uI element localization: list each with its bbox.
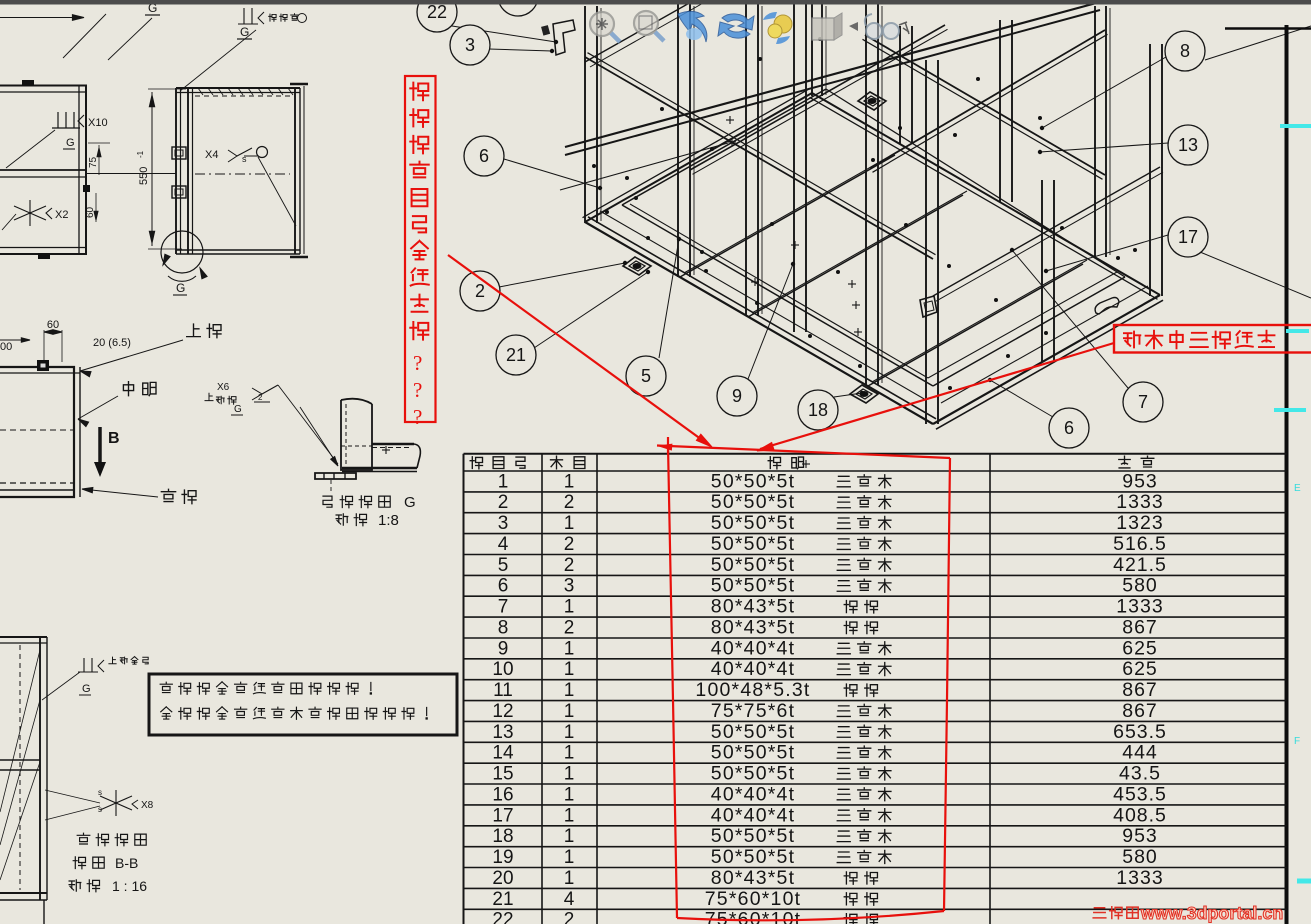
svg-text:7: 7 [1138, 392, 1148, 412]
svg-text:B-B: B-B [115, 855, 138, 871]
svg-text:80*43*5t: 80*43*5t [711, 617, 795, 639]
svg-text:1: 1 [564, 638, 575, 659]
svg-text:3: 3 [564, 576, 575, 597]
svg-text:50*50*5t: 50*50*5t [711, 533, 795, 555]
svg-text:G: G [82, 683, 91, 695]
svg-text:50*50*5t: 50*50*5t [711, 491, 795, 513]
svg-text:2: 2 [564, 492, 575, 513]
svg-text:11: 11 [493, 680, 513, 701]
svg-text:14: 14 [492, 743, 514, 764]
svg-text:625: 625 [1122, 637, 1158, 659]
svg-text:15: 15 [492, 764, 513, 785]
svg-text:s: s [98, 788, 102, 797]
svg-text:www.3dportal.cn: www.3dportal.cn [1140, 903, 1283, 923]
svg-text:?: ? [413, 378, 422, 402]
svg-text:X4: X4 [205, 149, 218, 161]
svg-text:1: 1 [564, 597, 575, 618]
svg-text:1: 1 [564, 868, 575, 889]
svg-text:953: 953 [1122, 470, 1158, 492]
svg-text:B: B [108, 430, 120, 447]
svg-text:9: 9 [498, 638, 509, 659]
svg-text:1323: 1323 [1116, 512, 1163, 534]
svg-text:6: 6 [479, 146, 489, 166]
svg-text:X2: X2 [55, 209, 68, 221]
svg-text:G: G [66, 137, 75, 149]
svg-text:80*43*5t: 80*43*5t [711, 867, 795, 889]
svg-text:408.5: 408.5 [1113, 804, 1167, 826]
svg-text:5: 5 [498, 555, 509, 576]
svg-text:22: 22 [492, 910, 513, 924]
svg-text:18: 18 [808, 400, 828, 420]
svg-text:1: 1 [564, 680, 575, 701]
svg-text:16: 16 [492, 784, 513, 805]
svg-text:X10: X10 [88, 117, 108, 129]
svg-text:F: F [1294, 736, 1300, 747]
svg-text:21: 21 [492, 889, 513, 910]
svg-text:75*60*10t: 75*60*10t [705, 909, 801, 924]
svg-text:10: 10 [492, 659, 513, 680]
svg-text:1: 1 [564, 471, 575, 492]
svg-text:7: 7 [498, 597, 509, 618]
svg-text:625: 625 [1122, 658, 1158, 680]
svg-text:1: 1 [564, 513, 575, 534]
svg-text:1: 1 [564, 722, 575, 743]
svg-text:1: 1 [564, 764, 575, 785]
svg-text:1333: 1333 [1116, 491, 1163, 513]
svg-text:G: G [176, 281, 185, 295]
svg-text:75*75*6t: 75*75*6t [711, 700, 795, 722]
svg-text:2: 2 [475, 281, 485, 301]
svg-text:1333: 1333 [1116, 867, 1163, 889]
svg-text:X6: X6 [217, 382, 230, 393]
svg-text:653.5: 653.5 [1113, 721, 1167, 743]
svg-text:43.5: 43.5 [1119, 763, 1161, 785]
svg-text:8: 8 [498, 618, 509, 639]
svg-text:E: E [1294, 483, 1301, 494]
svg-text:2: 2 [564, 534, 575, 555]
svg-text:13: 13 [492, 722, 513, 743]
svg-text:2: 2 [258, 393, 263, 402]
svg-text:1: 1 [564, 784, 575, 805]
svg-text:3: 3 [465, 35, 475, 55]
svg-text:20: 20 [492, 868, 513, 889]
svg-text:6: 6 [1064, 418, 1074, 438]
svg-text:8: 8 [1180, 41, 1190, 61]
svg-text:2: 2 [564, 618, 575, 639]
svg-text:80*43*5t: 80*43*5t [711, 596, 795, 618]
svg-text:453.5: 453.5 [1113, 783, 1167, 805]
svg-text:19: 19 [492, 847, 513, 868]
svg-text:50*50*5t: 50*50*5t [711, 846, 795, 868]
svg-text:4: 4 [498, 534, 509, 555]
svg-text:40*40*4t: 40*40*4t [711, 783, 795, 805]
svg-text:22: 22 [427, 2, 447, 22]
svg-text:?: ? [413, 351, 422, 375]
svg-text:867: 867 [1122, 700, 1158, 722]
svg-text:1: 1 [564, 805, 575, 826]
svg-text:21: 21 [506, 345, 526, 365]
svg-text:2: 2 [498, 492, 509, 513]
svg-text:4: 4 [564, 889, 575, 910]
svg-text:1: 1 [564, 659, 575, 680]
svg-text:5: 5 [641, 366, 651, 386]
svg-text:1: 1 [564, 743, 575, 764]
svg-text:50*50*5t: 50*50*5t [711, 763, 795, 785]
svg-text:1: 1 [564, 847, 575, 868]
svg-text:00: 00 [0, 341, 12, 353]
svg-text:953: 953 [1122, 825, 1158, 847]
svg-text:18: 18 [492, 826, 513, 847]
svg-text:50*50*5t: 50*50*5t [711, 554, 795, 576]
svg-text:1 : 16: 1 : 16 [112, 878, 147, 894]
svg-text:50*50*5t: 50*50*5t [711, 575, 795, 597]
svg-text:421.5: 421.5 [1113, 554, 1167, 576]
svg-text:50*50*5t: 50*50*5t [711, 470, 795, 492]
svg-text:-1: -1 [136, 150, 145, 158]
svg-text:3: 3 [498, 513, 509, 534]
svg-text:50*50*5t: 50*50*5t [711, 721, 795, 743]
svg-text:1: 1 [564, 701, 575, 722]
svg-text:1: 1 [498, 471, 509, 492]
svg-text:X8: X8 [141, 800, 154, 811]
svg-text:G: G [240, 25, 249, 39]
svg-text:G: G [234, 404, 242, 415]
svg-text:40*40*4t: 40*40*4t [711, 637, 795, 659]
svg-text:60: 60 [47, 319, 59, 331]
svg-text:9: 9 [732, 386, 742, 406]
svg-text:100*48*5.3t: 100*48*5.3t [695, 679, 810, 701]
svg-text:516.5: 516.5 [1113, 533, 1167, 555]
svg-text:17: 17 [1178, 227, 1198, 247]
svg-text:50*50*5t: 50*50*5t [711, 512, 795, 534]
svg-text:13: 13 [1178, 135, 1198, 155]
svg-text:1: 1 [564, 826, 575, 847]
svg-text:12: 12 [492, 701, 513, 722]
svg-text:580: 580 [1122, 846, 1158, 868]
svg-text:550: 550 [138, 167, 150, 185]
svg-text:75: 75 [88, 156, 99, 168]
svg-text:444: 444 [1122, 742, 1158, 764]
svg-text:50*50*5t: 50*50*5t [711, 742, 795, 764]
svg-text:?: ? [413, 405, 422, 429]
svg-text:6: 6 [498, 576, 509, 597]
svg-text:75*60*10t: 75*60*10t [705, 888, 801, 910]
svg-text:1333: 1333 [1116, 596, 1163, 618]
svg-text:867: 867 [1122, 617, 1158, 639]
svg-text:G: G [404, 494, 416, 511]
svg-text:867: 867 [1122, 679, 1158, 701]
svg-text:580: 580 [1122, 575, 1158, 597]
svg-text:2: 2 [564, 555, 575, 576]
svg-text:50*50*5t: 50*50*5t [711, 825, 795, 847]
svg-text:2: 2 [564, 910, 575, 924]
svg-text:1:8: 1:8 [378, 512, 399, 529]
svg-text:40*40*4t: 40*40*4t [711, 804, 795, 826]
svg-text:40*40*4t: 40*40*4t [711, 658, 795, 680]
svg-text:17: 17 [492, 805, 513, 826]
svg-text:20 (6.5): 20 (6.5) [93, 337, 131, 349]
